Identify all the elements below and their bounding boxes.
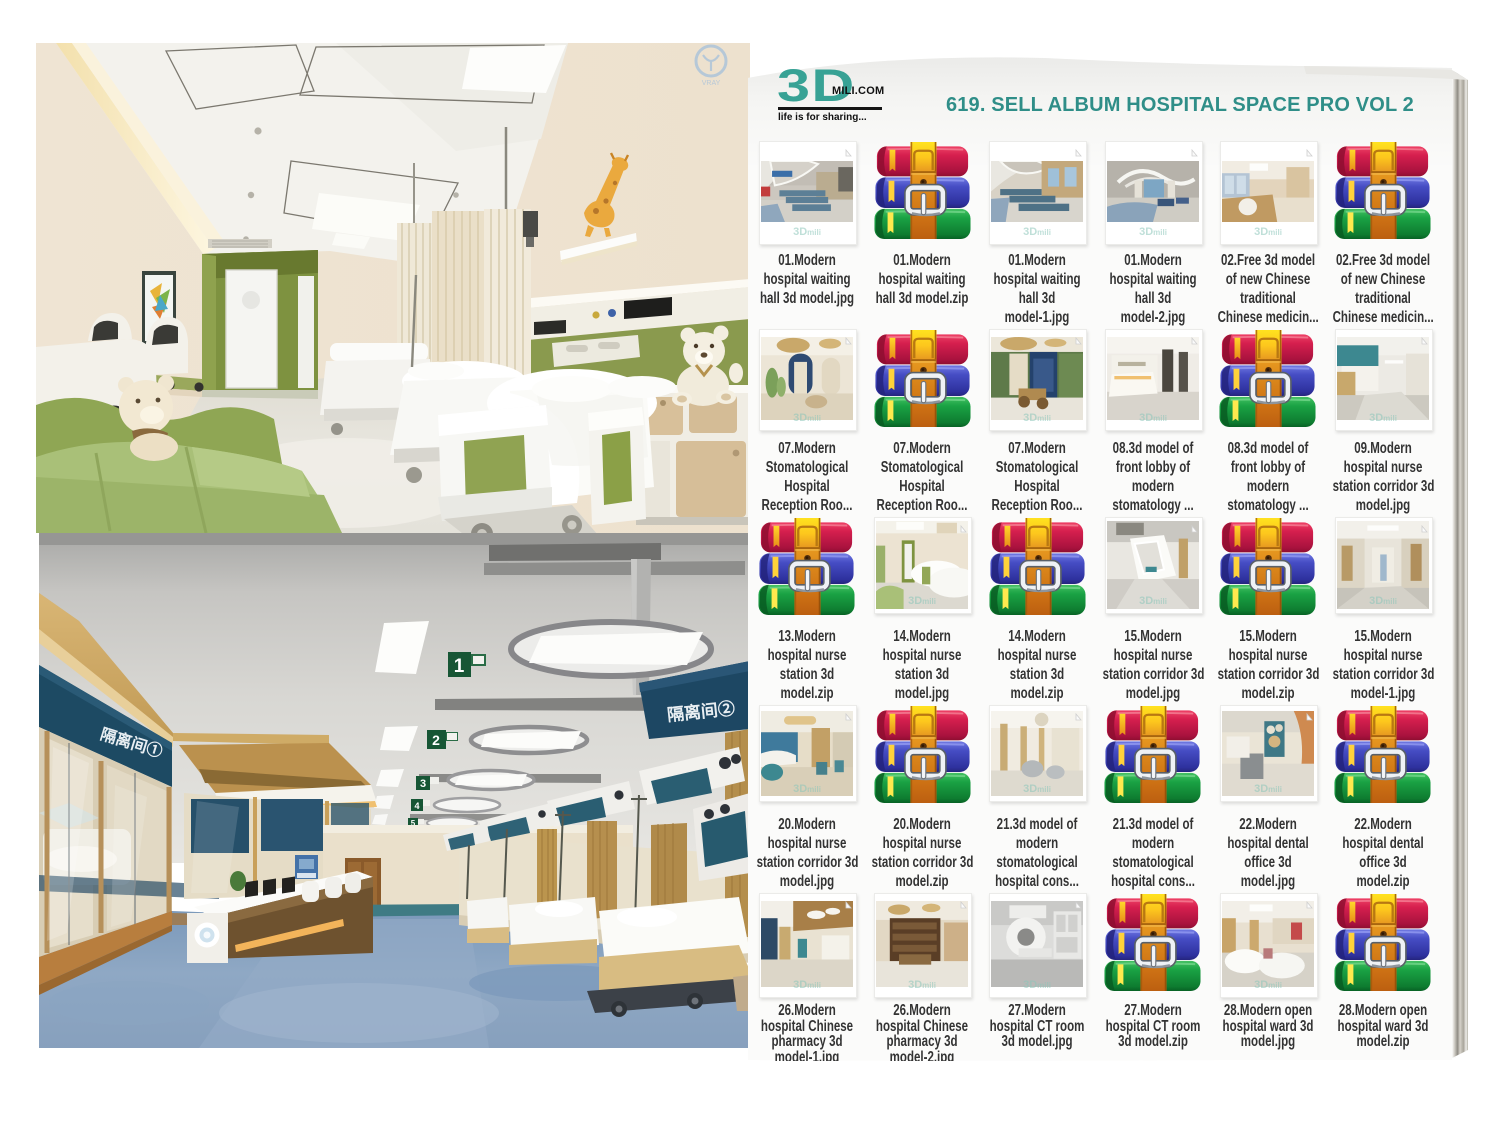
svg-text:1: 1 (454, 656, 465, 677)
svg-text:VRAY: VRAY (702, 80, 721, 87)
svg-text:2: 2 (432, 732, 440, 748)
svg-text:4: 4 (414, 801, 419, 811)
svg-text:3: 3 (420, 778, 426, 790)
